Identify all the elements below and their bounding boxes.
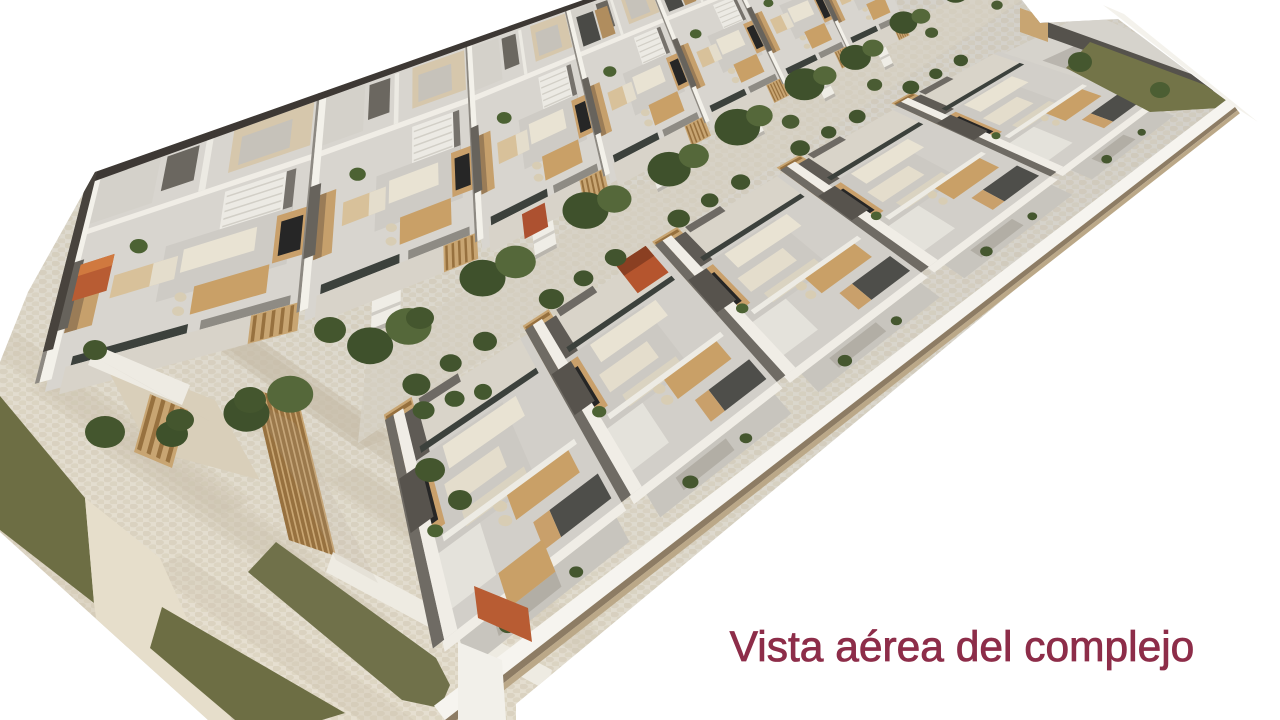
svg-text:Vista aérea del complejo: Vista aérea del complejo: [730, 624, 1195, 671]
